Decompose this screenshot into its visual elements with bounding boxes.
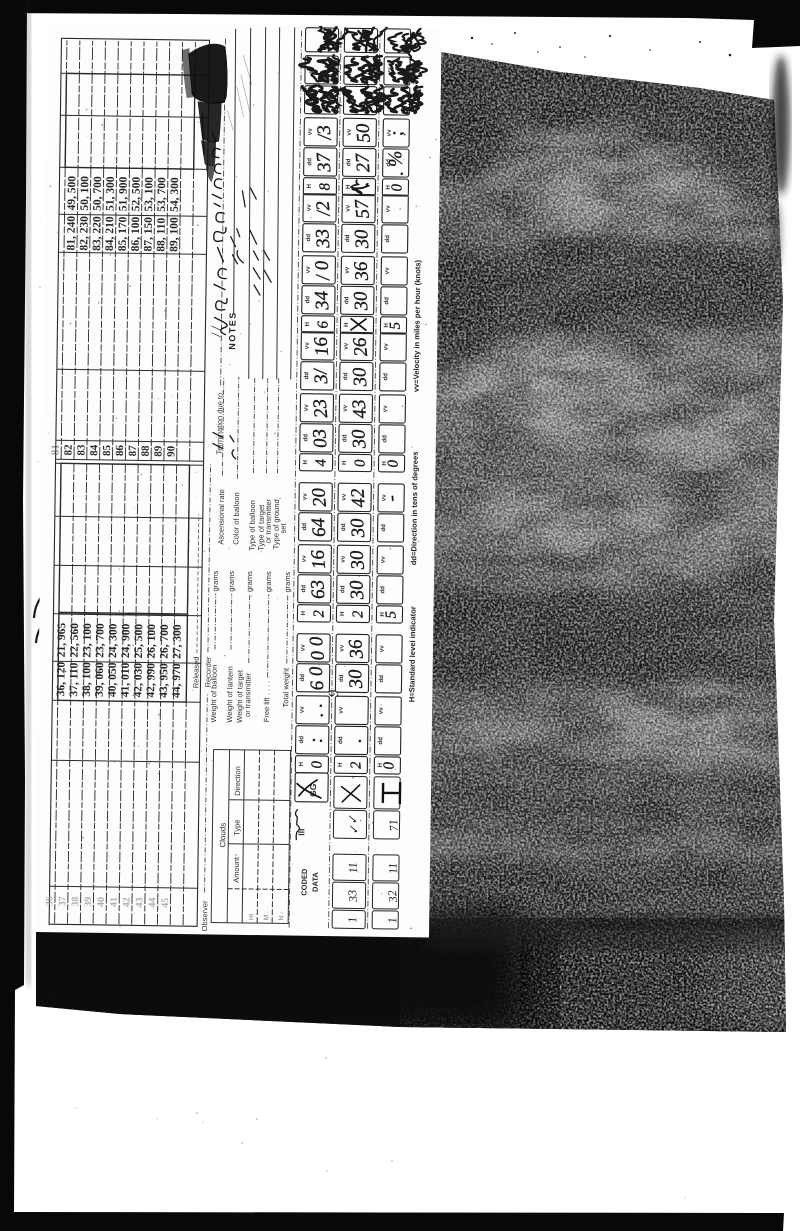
svg-text:50: 50 xyxy=(352,122,375,143)
svg-text:39: 39 xyxy=(83,897,94,907)
svg-text:84: 84 xyxy=(88,444,100,456)
svg-text:27: 27 xyxy=(352,151,374,173)
svg-text:dd: dd xyxy=(382,373,389,381)
svg-text:Weight of lantern: Weight of lantern xyxy=(225,666,235,723)
svg-text:vv: vv xyxy=(345,204,352,212)
svg-text:26, 100: 26, 100 xyxy=(146,624,158,659)
svg-text:Clouds: Clouds xyxy=(218,823,227,848)
svg-text:Type: Type xyxy=(232,819,241,835)
svg-text:16: 16 xyxy=(310,336,333,357)
svg-text:23: 23 xyxy=(310,398,333,419)
svg-text:86, 100: 86, 100 xyxy=(130,217,142,252)
svg-text:dd: dd xyxy=(301,523,308,531)
svg-text:/ 0: / 0 xyxy=(311,259,334,282)
svg-text:11: 11 xyxy=(385,862,400,874)
svg-text:30: 30 xyxy=(348,428,370,450)
svg-text:dd: dd xyxy=(377,737,384,745)
svg-text:0: 0 xyxy=(309,760,325,769)
svg-text:36: 36 xyxy=(350,260,373,282)
svg-text:88, 110: 88, 110 xyxy=(155,218,167,252)
svg-text:vv: vv xyxy=(378,707,385,715)
svg-text:Weight of balloon: Weight of balloon xyxy=(209,665,219,723)
svg-text:30: 30 xyxy=(351,228,373,250)
svg-text:81, 240: 81, 240 xyxy=(65,216,77,251)
svg-text:grams: grams xyxy=(227,571,236,592)
svg-text:51, 300: 51, 300 xyxy=(104,176,116,211)
svg-text:21, 965: 21, 965 xyxy=(56,623,68,658)
svg-text:52, 500: 52, 500 xyxy=(130,177,142,212)
svg-text:36: 36 xyxy=(44,896,55,906)
svg-text:H: H xyxy=(339,611,346,616)
svg-text:Amount: Amount xyxy=(232,856,241,883)
svg-text:dd: dd xyxy=(381,435,388,443)
svg-text:N .: N . xyxy=(278,912,285,921)
svg-text:vv: vv xyxy=(382,405,389,413)
svg-text:vv: vv xyxy=(338,706,345,714)
svg-text:23, 100: 23, 100 xyxy=(81,623,93,658)
svg-text:dd: dd xyxy=(304,296,311,304)
svg-text:26, 700: 26, 700 xyxy=(159,624,171,659)
svg-text:H: H xyxy=(341,460,348,465)
svg-text:40: 40 xyxy=(96,897,107,907)
svg-text:44: 44 xyxy=(147,898,158,908)
svg-text:81: 81 xyxy=(50,444,62,455)
svg-text:vv: vv xyxy=(304,342,311,350)
svg-text:33: 33 xyxy=(312,228,334,249)
svg-text:50, 700: 50, 700 xyxy=(92,176,104,211)
svg-text:vv: vv xyxy=(301,555,308,563)
svg-text:85, 170: 85, 170 xyxy=(117,216,129,251)
svg-text:42: 42 xyxy=(122,897,133,907)
svg-text:6 0: 6 0 xyxy=(306,665,329,691)
svg-text:vv: vv xyxy=(303,404,310,412)
svg-text:H: H xyxy=(304,321,311,326)
svg-text:Direction: Direction xyxy=(233,766,242,796)
svg-text::: : xyxy=(306,736,327,744)
svg-text:57: 57 xyxy=(351,197,374,219)
svg-text:20: 20 xyxy=(308,487,331,508)
svg-text:dd: dd xyxy=(303,372,310,380)
svg-text:30: 30 xyxy=(350,290,372,312)
svg-text:dd: dd xyxy=(300,585,307,593)
svg-text:49, 500: 49, 500 xyxy=(66,176,78,211)
svg-text:1: 1 xyxy=(385,917,399,924)
svg-text:Color of balloon: Color of balloon xyxy=(231,492,241,545)
svg-text:36: 36 xyxy=(345,638,368,660)
svg-text:dd: dd xyxy=(298,736,305,744)
svg-text:27, 300: 27, 300 xyxy=(171,624,183,659)
svg-text:89: 89 xyxy=(152,445,164,457)
svg-text:vv: vv xyxy=(299,644,306,652)
svg-text:dd: dd xyxy=(339,585,346,593)
svg-text:22, 560: 22, 560 xyxy=(69,623,81,658)
svg-text:dd=Direction in tens of degree: dd=Direction in tens of degrees xyxy=(409,451,420,565)
svg-text:23, 700: 23, 700 xyxy=(94,623,106,658)
svg-text:0: 0 xyxy=(352,459,368,468)
svg-text:43: 43 xyxy=(349,399,372,420)
svg-text:38: 38 xyxy=(70,896,81,906)
svg-text:Released: Released xyxy=(191,656,200,688)
svg-text:40, 050: 40, 050 xyxy=(107,662,119,697)
svg-text:vv: vv xyxy=(384,267,391,275)
svg-text:1: 1 xyxy=(345,916,359,923)
svg-text:30: 30 xyxy=(346,579,368,601)
svg-text:Hi: Hi xyxy=(248,914,255,920)
svg-text:H: H xyxy=(306,183,313,188)
svg-text:M :: M : xyxy=(263,911,270,920)
svg-text:dd: dd xyxy=(345,158,352,166)
svg-text:Observer: Observer xyxy=(200,900,209,931)
svg-text:90: 90 xyxy=(165,445,177,457)
svg-text:82: 82 xyxy=(63,444,75,456)
svg-text:89, 100: 89, 100 xyxy=(168,217,180,252)
svg-text:vv: vv xyxy=(344,266,351,274)
svg-text:dd: dd xyxy=(378,675,385,683)
svg-text:vv: vv xyxy=(342,404,349,412)
svg-text:Free lift . . . . .: Free lift . . . . . xyxy=(262,676,272,722)
svg-text:vv: vv xyxy=(378,645,385,653)
svg-text:8: 8 xyxy=(317,182,333,191)
svg-text:2: 2 xyxy=(311,609,327,618)
svg-text:30: 30 xyxy=(347,517,369,539)
svg-text:37, 110: 37, 110 xyxy=(68,662,80,696)
svg-text:H: H xyxy=(343,322,350,327)
svg-text:54, 300: 54, 300 xyxy=(169,177,181,212)
svg-text:H: H xyxy=(337,762,344,767)
svg-text:87: 87 xyxy=(127,445,139,457)
svg-text:dd: dd xyxy=(337,736,344,744)
svg-text:5: 5 xyxy=(383,610,399,619)
svg-text:grams: grams xyxy=(283,571,292,592)
svg-text:30: 30 xyxy=(346,549,369,571)
svg-text:34: 34 xyxy=(311,290,333,312)
svg-text:. %: . % xyxy=(385,150,408,177)
svg-text:vv: vv xyxy=(341,493,348,501)
svg-text:. .: . . xyxy=(306,702,328,718)
svg-text:30: 30 xyxy=(349,366,371,388)
svg-text:dd: dd xyxy=(338,674,345,682)
svg-text:24, 900: 24, 900 xyxy=(120,623,132,658)
svg-text:50, 100: 50, 100 xyxy=(79,176,91,211)
svg-text:dd: dd xyxy=(340,523,347,531)
svg-text:41: 41 xyxy=(109,897,120,907)
svg-text:dd: dd xyxy=(342,372,349,380)
svg-text:/2: /2 xyxy=(312,200,334,218)
svg-text:85: 85 xyxy=(101,444,113,456)
svg-text:83: 83 xyxy=(75,444,87,456)
svg-text:dd: dd xyxy=(379,586,386,594)
svg-text:2: 2 xyxy=(350,610,366,619)
svg-text:Ascensional rate: Ascensional rate xyxy=(216,489,226,545)
svg-text:82, 230: 82, 230 xyxy=(78,216,90,251)
svg-text:H: H xyxy=(302,459,309,464)
svg-text:30: 30 xyxy=(345,668,367,690)
svg-text:dd: dd xyxy=(384,235,391,243)
svg-text:53, 700: 53, 700 xyxy=(156,177,168,212)
svg-text:dd: dd xyxy=(299,674,306,682)
svg-text:6: 6 xyxy=(315,320,331,329)
svg-text:vv=Velocity in miles per hour: vv=Velocity in miles per hour (knots) xyxy=(412,259,423,392)
svg-text:11: 11 xyxy=(345,862,360,874)
svg-text:39, 060: 39, 060 xyxy=(94,662,106,697)
svg-text:16: 16 xyxy=(307,549,330,570)
svg-text:42: 42 xyxy=(347,487,370,508)
svg-text:42, 990: 42, 990 xyxy=(145,663,157,698)
svg-text:vv: vv xyxy=(380,556,387,564)
svg-text:vv: vv xyxy=(338,644,345,652)
svg-text:83, 220: 83, 220 xyxy=(91,216,103,251)
svg-text:.: . xyxy=(345,738,366,744)
svg-text:grams: grams xyxy=(264,571,273,592)
svg-text:NOTES: NOTES xyxy=(227,311,238,350)
svg-text:37: 37 xyxy=(57,896,68,906)
svg-text:25, 500: 25, 500 xyxy=(133,624,145,659)
svg-text:CODED: CODED xyxy=(300,868,309,896)
svg-text:0: 0 xyxy=(385,459,401,468)
svg-text:vv: vv xyxy=(346,128,353,136)
svg-text:41, 010: 41, 010 xyxy=(119,662,131,697)
svg-text:dd: dd xyxy=(344,234,351,242)
svg-text:vv: vv xyxy=(340,555,347,563)
svg-text:87, 150: 87, 150 xyxy=(143,217,155,252)
svg-text:88: 88 xyxy=(140,445,152,457)
svg-text:32: 32 xyxy=(385,890,400,904)
svg-text:33: 33 xyxy=(345,889,360,903)
svg-text:43: 43 xyxy=(134,897,145,907)
svg-text:vv: vv xyxy=(385,205,392,213)
svg-text:vv: vv xyxy=(343,342,350,350)
svg-text:vv: vv xyxy=(306,204,313,212)
svg-text:H: H xyxy=(300,610,307,615)
svg-text:42, 030: 42, 030 xyxy=(132,663,144,698)
svg-text:dd: dd xyxy=(341,434,348,442)
svg-text:grams: grams xyxy=(211,570,220,591)
svg-text:✓✓: ✓✓ xyxy=(346,814,362,835)
svg-text:5: 5 xyxy=(387,321,403,330)
svg-text:64: 64 xyxy=(308,517,330,538)
svg-text:set: set xyxy=(279,522,288,533)
svg-text:63: 63 xyxy=(307,579,329,599)
svg-text:Total weight: Total weight xyxy=(281,667,291,708)
svg-text:dd: dd xyxy=(343,296,350,304)
svg-text:37: 37 xyxy=(313,151,336,174)
svg-text:vv: vv xyxy=(307,128,314,136)
svg-text:vv: vv xyxy=(383,343,390,351)
svg-text:H=Standard level indicator: H=Standard level indicator xyxy=(407,606,417,702)
svg-text:H: H xyxy=(298,761,305,766)
svg-text:38, 100: 38, 100 xyxy=(81,662,93,697)
svg-text:71: 71 xyxy=(386,819,401,832)
svg-text:DATA: DATA xyxy=(311,872,320,892)
svg-text:43, 950: 43, 950 xyxy=(158,663,170,698)
svg-text:III: III xyxy=(296,829,306,836)
svg-text:dd: dd xyxy=(380,524,387,532)
svg-text:86: 86 xyxy=(114,445,126,457)
svg-text:26: 26 xyxy=(349,336,372,357)
svg-text:2: 2 xyxy=(348,761,364,770)
svg-text:4: 4 xyxy=(313,458,329,467)
svg-text:dd: dd xyxy=(306,158,313,166)
svg-text:/3: /3 xyxy=(314,124,336,142)
svg-text:3/: 3/ xyxy=(310,367,332,386)
svg-text:51, 900: 51, 900 xyxy=(117,176,129,211)
svg-text:dd: dd xyxy=(305,234,312,242)
svg-text:03: 03 xyxy=(309,428,331,448)
svg-text:vv: vv xyxy=(305,266,312,274)
svg-text:44, 970: 44, 970 xyxy=(171,663,183,698)
svg-text:vv: vv xyxy=(302,493,309,501)
svg-text:or transmitter: or transmitter xyxy=(243,672,253,717)
svg-text:45: 45 xyxy=(160,898,171,908)
svg-text:36, 120: 36, 120 xyxy=(55,662,67,697)
svg-text:dd: dd xyxy=(302,434,309,442)
svg-text:84, 210: 84, 210 xyxy=(104,216,116,251)
svg-text:24, 300: 24, 300 xyxy=(107,623,119,658)
svg-text:0: 0 xyxy=(389,183,405,192)
svg-text:53, 100: 53, 100 xyxy=(143,177,155,212)
svg-text:vv: vv xyxy=(299,706,306,714)
svg-text:grams: grams xyxy=(245,571,254,592)
svg-text:dd: dd xyxy=(383,297,390,305)
svg-text:0 0: 0 0 xyxy=(306,635,329,661)
